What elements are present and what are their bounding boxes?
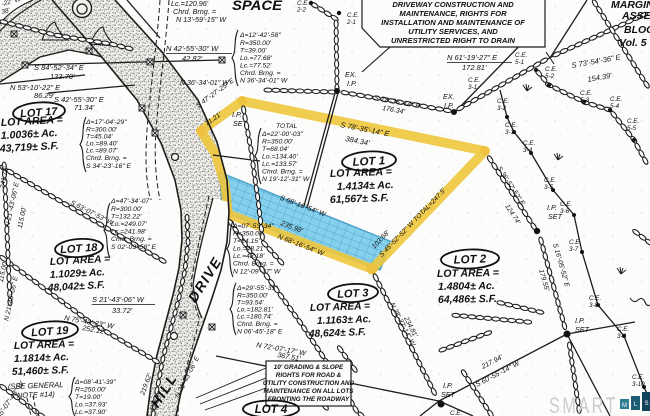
svg-text:Chrd. Brng. =: Chrd. Brng. = bbox=[240, 70, 281, 77]
svg-text:1.1814± Ac.: 1.1814± Ac. bbox=[14, 352, 69, 365]
svg-text:3-8: 3-8 bbox=[589, 302, 599, 309]
svg-text:C.E.: C.E. bbox=[560, 201, 572, 208]
svg-text:Δ=47'-34'-07": Δ=47'-34'-07" bbox=[110, 198, 152, 205]
svg-text:2-1: 2-1 bbox=[346, 19, 356, 26]
svg-text:I.P.: I.P. bbox=[347, 79, 357, 88]
svg-text:I.P.: I.P. bbox=[232, 110, 242, 119]
svg-text:N 36'-34'-01" W: N 36'-34'-01" W bbox=[240, 78, 288, 85]
svg-text:C.E.: C.E. bbox=[610, 96, 622, 103]
svg-text:I.P.: I.P. bbox=[444, 101, 454, 110]
svg-text:Lo.=134.40': Lo.=134.40' bbox=[262, 154, 298, 161]
svg-text:M: M bbox=[622, 403, 627, 409]
svg-text:MAINTENANCE ON ALL LOTS: MAINTENANCE ON ALL LOTS bbox=[264, 388, 355, 395]
svg-text:SET: SET bbox=[548, 212, 563, 221]
svg-text:1.4134± Ac.: 1.4134± Ac. bbox=[337, 179, 394, 193]
svg-text:C.E.: C.E. bbox=[589, 295, 601, 302]
svg-text:51,460± S.F.: 51,460± S.F. bbox=[12, 365, 69, 378]
svg-text:NOTE #14): NOTE #14) bbox=[17, 390, 56, 400]
svg-text:172.81': 172.81' bbox=[462, 63, 487, 72]
svg-text:SPACE: SPACE bbox=[232, 0, 283, 13]
svg-text:Lc.=89.07': Lc.=89.07' bbox=[86, 148, 118, 155]
svg-text:N 06'-45'-18" E: N 06'-45'-18" E bbox=[237, 329, 283, 336]
svg-text:R=250.00': R=250.00' bbox=[75, 387, 107, 394]
svg-text:5-3: 5-3 bbox=[580, 97, 590, 104]
svg-text:UTILITY SERVICES, AND: UTILITY SERVICES, AND bbox=[408, 27, 498, 36]
svg-text:Lc.=48.18': Lc.=48.18' bbox=[233, 253, 265, 260]
svg-text:N 19'-12'-31" W: N 19'-12'-31" W bbox=[262, 176, 310, 183]
svg-text:Chrd. Brng. =: Chrd. Brng. = bbox=[111, 236, 152, 243]
svg-text:I.P.: I.P. bbox=[443, 381, 453, 390]
svg-text:SMART: SMART bbox=[549, 393, 618, 416]
svg-text:LOT AREA =: LOT AREA = bbox=[437, 267, 499, 280]
svg-text:I.P.: I.P. bbox=[575, 316, 585, 325]
svg-text:RIGHTS FOR ROAD &: RIGHTS FOR ROAD & bbox=[276, 372, 342, 379]
svg-text:C.E.: C.E. bbox=[505, 122, 517, 129]
svg-text:5-1: 5-1 bbox=[515, 59, 524, 66]
svg-text:48,624± S.F.: 48,624± S.F. bbox=[308, 327, 366, 340]
svg-text:C.E.: C.E. bbox=[627, 118, 639, 125]
svg-text:EX.: EX. bbox=[443, 92, 455, 101]
svg-text:C.E.: C.E. bbox=[450, 410, 462, 416]
svg-text:TOTAL: TOTAL bbox=[276, 123, 297, 130]
svg-text:Lc.=77.52': Lc.=77.52' bbox=[240, 63, 272, 70]
svg-text:Lo.=182.81': Lo.=182.81' bbox=[237, 307, 273, 314]
svg-text:T=19.00': T=19.00' bbox=[75, 394, 102, 401]
svg-text:MAINTENANCE, RIGHTS FOR: MAINTENANCE, RIGHTS FOR bbox=[399, 9, 507, 18]
svg-text:R=300.00': R=300.00' bbox=[111, 206, 143, 213]
svg-text:Lc.=133.57': Lc.=133.57' bbox=[262, 161, 298, 168]
svg-text:Δ=29'-55'-35": Δ=29'-55'-35" bbox=[236, 285, 278, 292]
svg-text:3-1: 3-1 bbox=[468, 84, 477, 91]
svg-text:Lo.=249.07': Lo.=249.07' bbox=[111, 221, 147, 228]
svg-text:Lc.=241.98': Lc.=241.98' bbox=[111, 229, 147, 236]
svg-text:S: S bbox=[644, 401, 648, 407]
svg-text:Δ=12'-42'-58": Δ=12'-42'-58" bbox=[239, 32, 281, 39]
svg-text:10' GRADING & SLOPE: 10' GRADING & SLOPE bbox=[274, 364, 344, 371]
svg-text:Δ=17'-04'-29": Δ=17'-04'-29" bbox=[85, 119, 127, 126]
svg-text:INSTALLATION AND MAINTENANCE O: INSTALLATION AND MAINTENANCE OF bbox=[381, 18, 525, 27]
svg-text:BLOCK: BLOCK bbox=[624, 24, 650, 36]
svg-text:LOT 2: LOT 2 bbox=[453, 253, 487, 266]
svg-text:33.72': 33.72' bbox=[112, 306, 133, 315]
svg-text:42.82': 42.82' bbox=[182, 54, 203, 63]
svg-text:71.34': 71.34' bbox=[74, 103, 95, 112]
svg-text:R=350.00': R=350.00' bbox=[237, 293, 269, 300]
svg-text:T=39.00': T=39.00' bbox=[240, 48, 267, 55]
svg-text:3-7: 3-7 bbox=[569, 246, 579, 253]
svg-text:Chrd. Brng. =: Chrd. Brng. = bbox=[233, 261, 274, 268]
svg-text:SET: SET bbox=[575, 325, 590, 334]
svg-text:LOT AREA =: LOT AREA = bbox=[14, 339, 74, 352]
svg-text:N 61'-19'-27" E: N 61'-19'-27" E bbox=[447, 53, 498, 62]
svg-text:86.29': 86.29' bbox=[34, 91, 55, 100]
svg-text:3-4: 3-4 bbox=[523, 147, 533, 154]
svg-text:3-5: 3-5 bbox=[544, 184, 554, 191]
svg-text:3-3: 3-3 bbox=[505, 129, 515, 136]
svg-text:Vol. 5: Vol. 5 bbox=[619, 37, 647, 49]
svg-text:Δ=22'-00'-03": Δ=22'-00'-03" bbox=[261, 131, 303, 138]
svg-text:S 34'-23'-16" E: S 34'-23'-16" E bbox=[86, 163, 132, 170]
svg-text:C.E.: C.E. bbox=[569, 239, 581, 246]
svg-text:T=24.15': T=24.15' bbox=[233, 238, 260, 245]
svg-text:R=300.00': R=300.00' bbox=[86, 127, 118, 134]
svg-text:LOT AREA =: LOT AREA = bbox=[310, 301, 370, 314]
svg-text:C.E.: C.E. bbox=[468, 77, 480, 84]
svg-text:S 21'-43'-06" W: S 21'-43'-06" W bbox=[92, 295, 145, 304]
svg-text:LOT 4: LOT 4 bbox=[255, 404, 288, 416]
svg-text:C.E.: C.E. bbox=[617, 326, 629, 333]
svg-text:EX.: EX. bbox=[345, 70, 357, 79]
svg-text:T=68.04': T=68.04' bbox=[262, 146, 289, 153]
svg-text:1.1163± Ac.: 1.1163± Ac. bbox=[317, 314, 372, 327]
svg-text:2-2: 2-2 bbox=[296, 7, 307, 14]
svg-text:Lc.=180.74': Lc.=180.74' bbox=[237, 314, 273, 321]
svg-text:N 42'-55'-30" W: N 42'-55'-30" W bbox=[166, 44, 219, 53]
svg-text:C.E.: C.E. bbox=[497, 98, 509, 105]
svg-text:FRONTING THE ROADWAY: FRONTING THE ROADWAY bbox=[268, 396, 350, 403]
svg-text:C.E.: C.E. bbox=[580, 90, 592, 97]
svg-text:C.E.: C.E. bbox=[632, 374, 644, 381]
svg-text:R=350.00': R=350.00' bbox=[240, 40, 272, 47]
svg-text:T=93.54': T=93.54' bbox=[237, 300, 264, 307]
svg-text:Δ=08'-41'-39": Δ=08'-41'-39" bbox=[74, 379, 116, 386]
svg-text:Lo.=48.21': Lo.=48.21' bbox=[233, 246, 265, 253]
svg-text:C.E.: C.E. bbox=[515, 52, 527, 59]
svg-text:C.E.: C.E. bbox=[523, 140, 535, 147]
svg-text:T=45.04': T=45.04' bbox=[86, 134, 113, 141]
svg-text:Lo.=89.40': Lo.=89.40' bbox=[86, 141, 118, 148]
svg-text:N 12'-09'-17" W: N 12'-09'-17" W bbox=[233, 269, 281, 276]
svg-text:5-4: 5-4 bbox=[610, 103, 620, 110]
svg-text:ASSES: ASSES bbox=[621, 10, 650, 22]
svg-text:DRIVEWAY CONSTRUCTION AND: DRIVEWAY CONSTRUCTION AND bbox=[392, 0, 514, 9]
svg-text:Chrd. Brng. =: Chrd. Brng. = bbox=[262, 169, 303, 176]
svg-text:Lo.=77.68': Lo.=77.68' bbox=[240, 55, 272, 62]
svg-text:I.P.: I.P. bbox=[547, 203, 557, 212]
svg-text:SET: SET bbox=[441, 390, 456, 399]
svg-text:C.E.: C.E. bbox=[347, 12, 359, 19]
svg-text:T=132.22': T=132.22' bbox=[111, 214, 142, 221]
svg-text:Chrd. Brng. =: Chrd. Brng. = bbox=[86, 155, 127, 162]
svg-text:S 02'-03'-58" E: S 02'-03'-58" E bbox=[111, 244, 157, 251]
svg-text:N 13'-59'-15" W: N 13'-59'-15" W bbox=[176, 15, 227, 24]
svg-text:3-9: 3-9 bbox=[617, 333, 627, 340]
svg-text:Δ=07'-53'-34": Δ=07'-53'-34" bbox=[232, 223, 274, 230]
svg-text:C.E.: C.E. bbox=[544, 177, 556, 184]
svg-text:5-5: 5-5 bbox=[627, 125, 637, 132]
svg-text:Lc.=37.90': Lc.=37.90' bbox=[75, 409, 107, 416]
svg-text:61,567± S.F.: 61,567± S.F. bbox=[330, 192, 389, 206]
svg-text:LOT 3: LOT 3 bbox=[337, 287, 369, 301]
svg-text:Chrd. Brng. =: Chrd. Brng. = bbox=[237, 321, 278, 328]
svg-text:3-2: 3-2 bbox=[497, 105, 507, 112]
svg-text:1.4804± Ac.: 1.4804± Ac. bbox=[438, 280, 495, 293]
svg-text:133.70': 133.70' bbox=[50, 72, 75, 81]
svg-text:UNRESTRICTED RIGHT TO DRAIN: UNRESTRICTED RIGHT TO DRAIN bbox=[391, 36, 515, 45]
svg-text:LOT AREA =: LOT AREA = bbox=[330, 166, 392, 180]
svg-text:5-2: 5-2 bbox=[545, 73, 555, 80]
svg-text:Lo.=37.93': Lo.=37.93' bbox=[75, 402, 107, 409]
svg-text:S 84'-52'-34" E: S 84'-52'-34" E bbox=[34, 63, 85, 72]
svg-text:64,486± S.F.: 64,486± S.F. bbox=[438, 293, 497, 306]
svg-text:R=350.00': R=350.00' bbox=[262, 139, 294, 146]
svg-text:UTILITY CONSTRUCTION AND: UTILITY CONSTRUCTION AND bbox=[263, 380, 355, 387]
svg-text:SET: SET bbox=[233, 119, 248, 128]
svg-text:3-10: 3-10 bbox=[632, 381, 645, 388]
svg-text:C.E.: C.E. bbox=[545, 66, 557, 73]
svg-text:R=350.00: R=350.00 bbox=[233, 231, 263, 238]
